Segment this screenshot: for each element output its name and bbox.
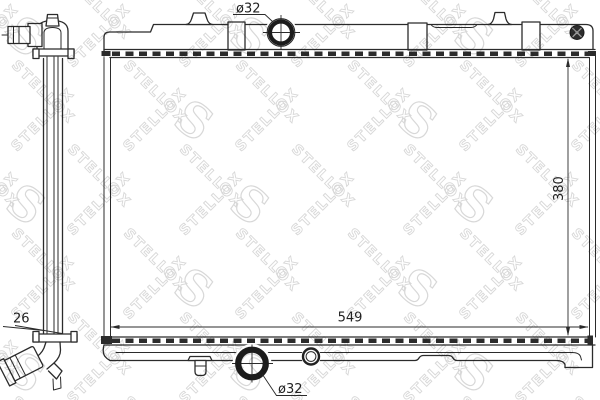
frame-nub bbox=[102, 51, 111, 56]
drawing-svg: 380 549 ø32 ø32 26 STELLOXSTELLOXSSTELLO… bbox=[0, 0, 600, 400]
flange-tab bbox=[71, 332, 77, 343]
radiator-technical-drawing: 380 549 ø32 ø32 26 STELLOXSTELLOXSSTELLO… bbox=[0, 0, 600, 400]
arrow-right bbox=[580, 325, 589, 329]
arrow-down bbox=[566, 327, 570, 336]
arrow-left bbox=[111, 325, 120, 329]
flange-tab bbox=[33, 332, 39, 343]
watermark-text: STELLOX bbox=[568, 394, 600, 400]
frame-nub bbox=[588, 51, 596, 56]
arrow-up bbox=[566, 58, 570, 67]
